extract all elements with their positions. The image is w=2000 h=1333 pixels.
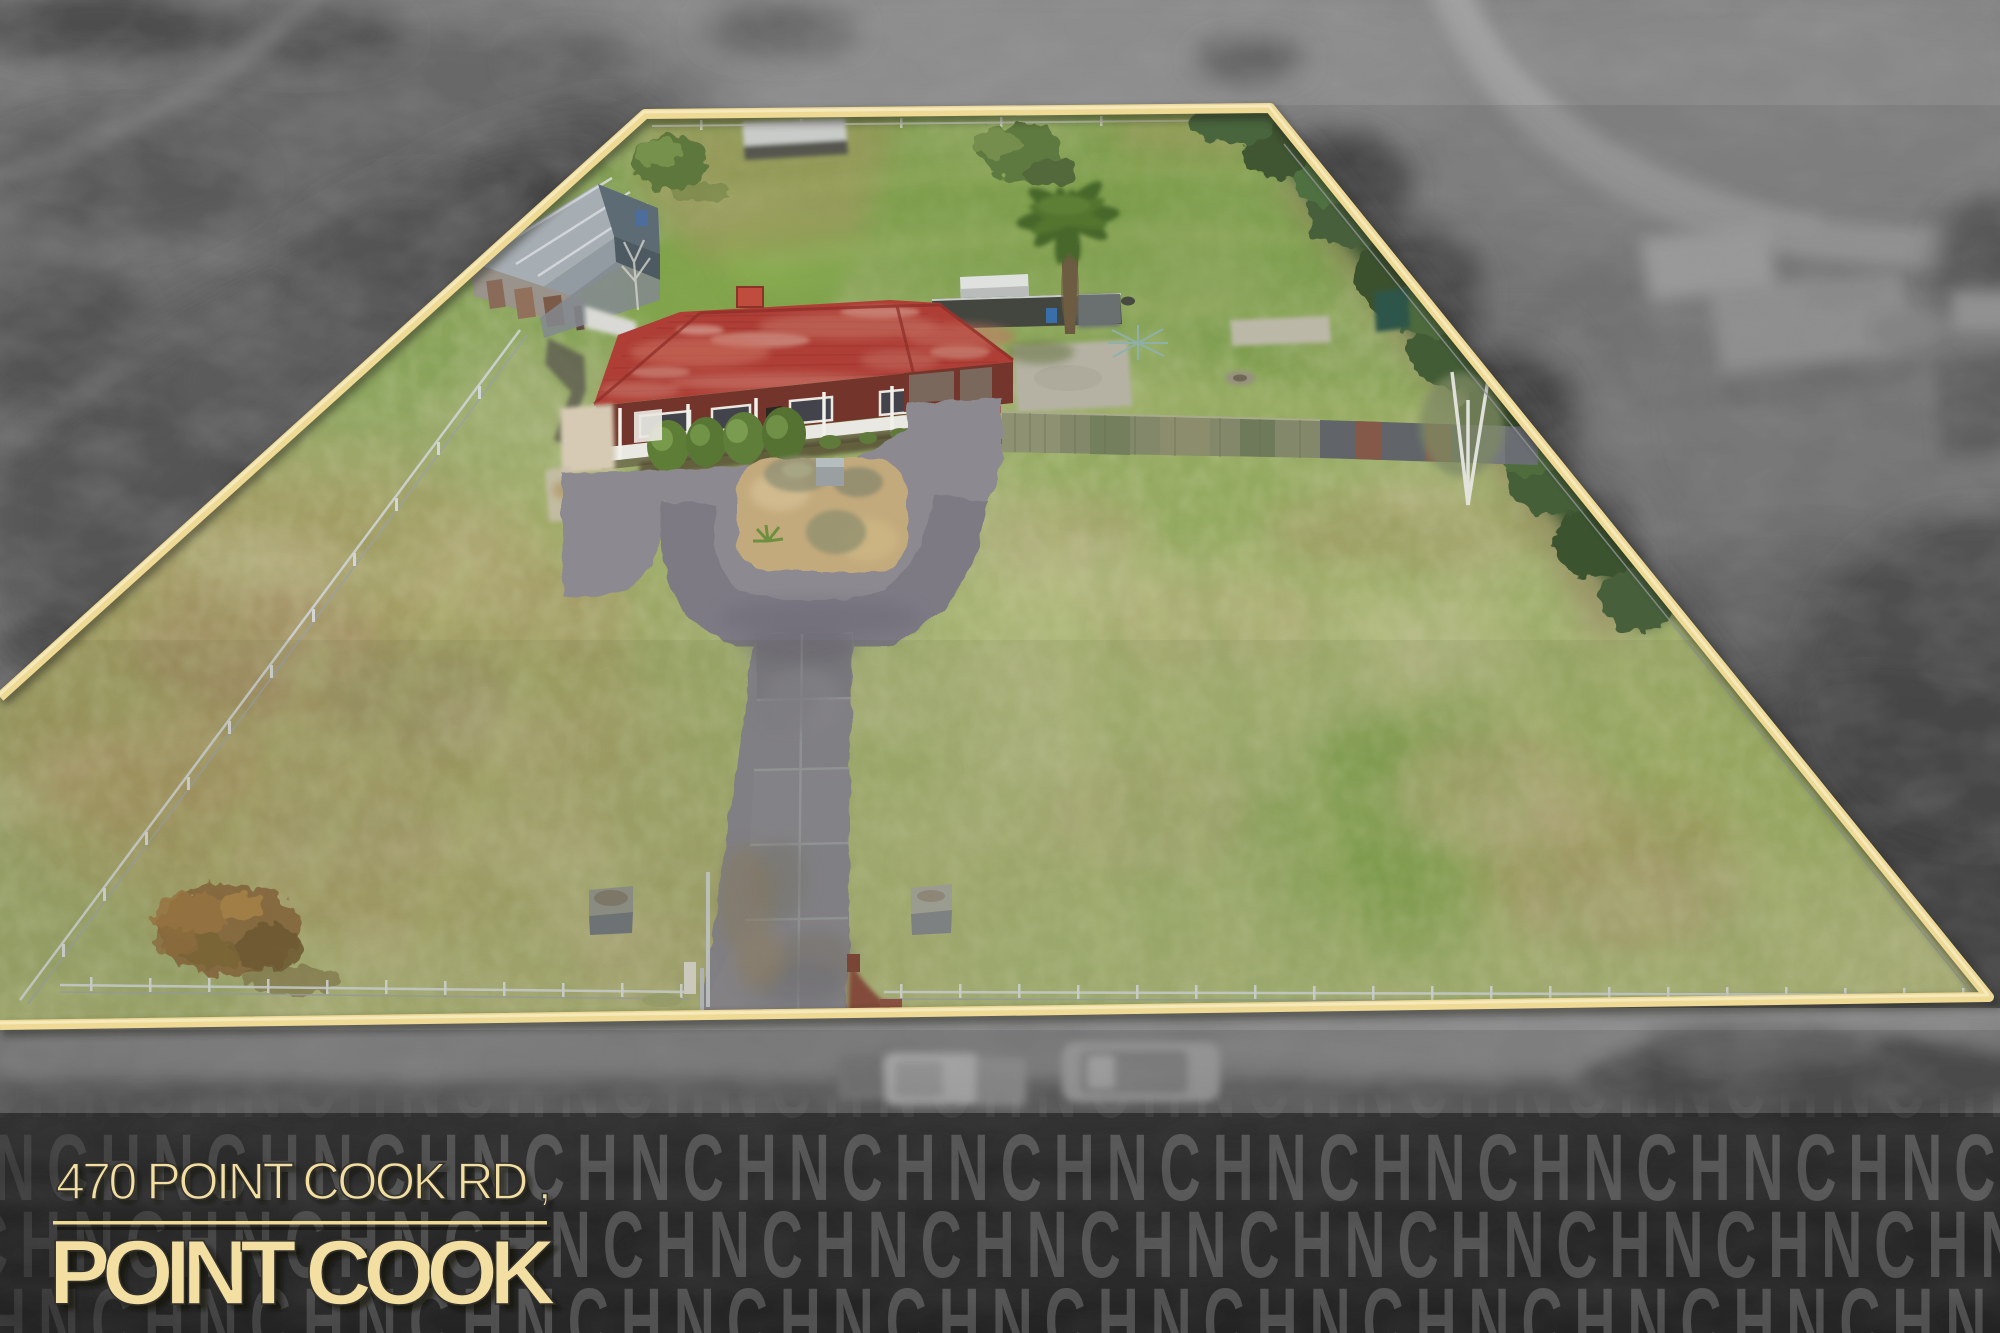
svg-text:POINT COOK: POINT COOK	[49, 1222, 556, 1324]
svg-text:470 POINT COOK RD ,: 470 POINT COOK RD ,	[56, 1153, 552, 1211]
